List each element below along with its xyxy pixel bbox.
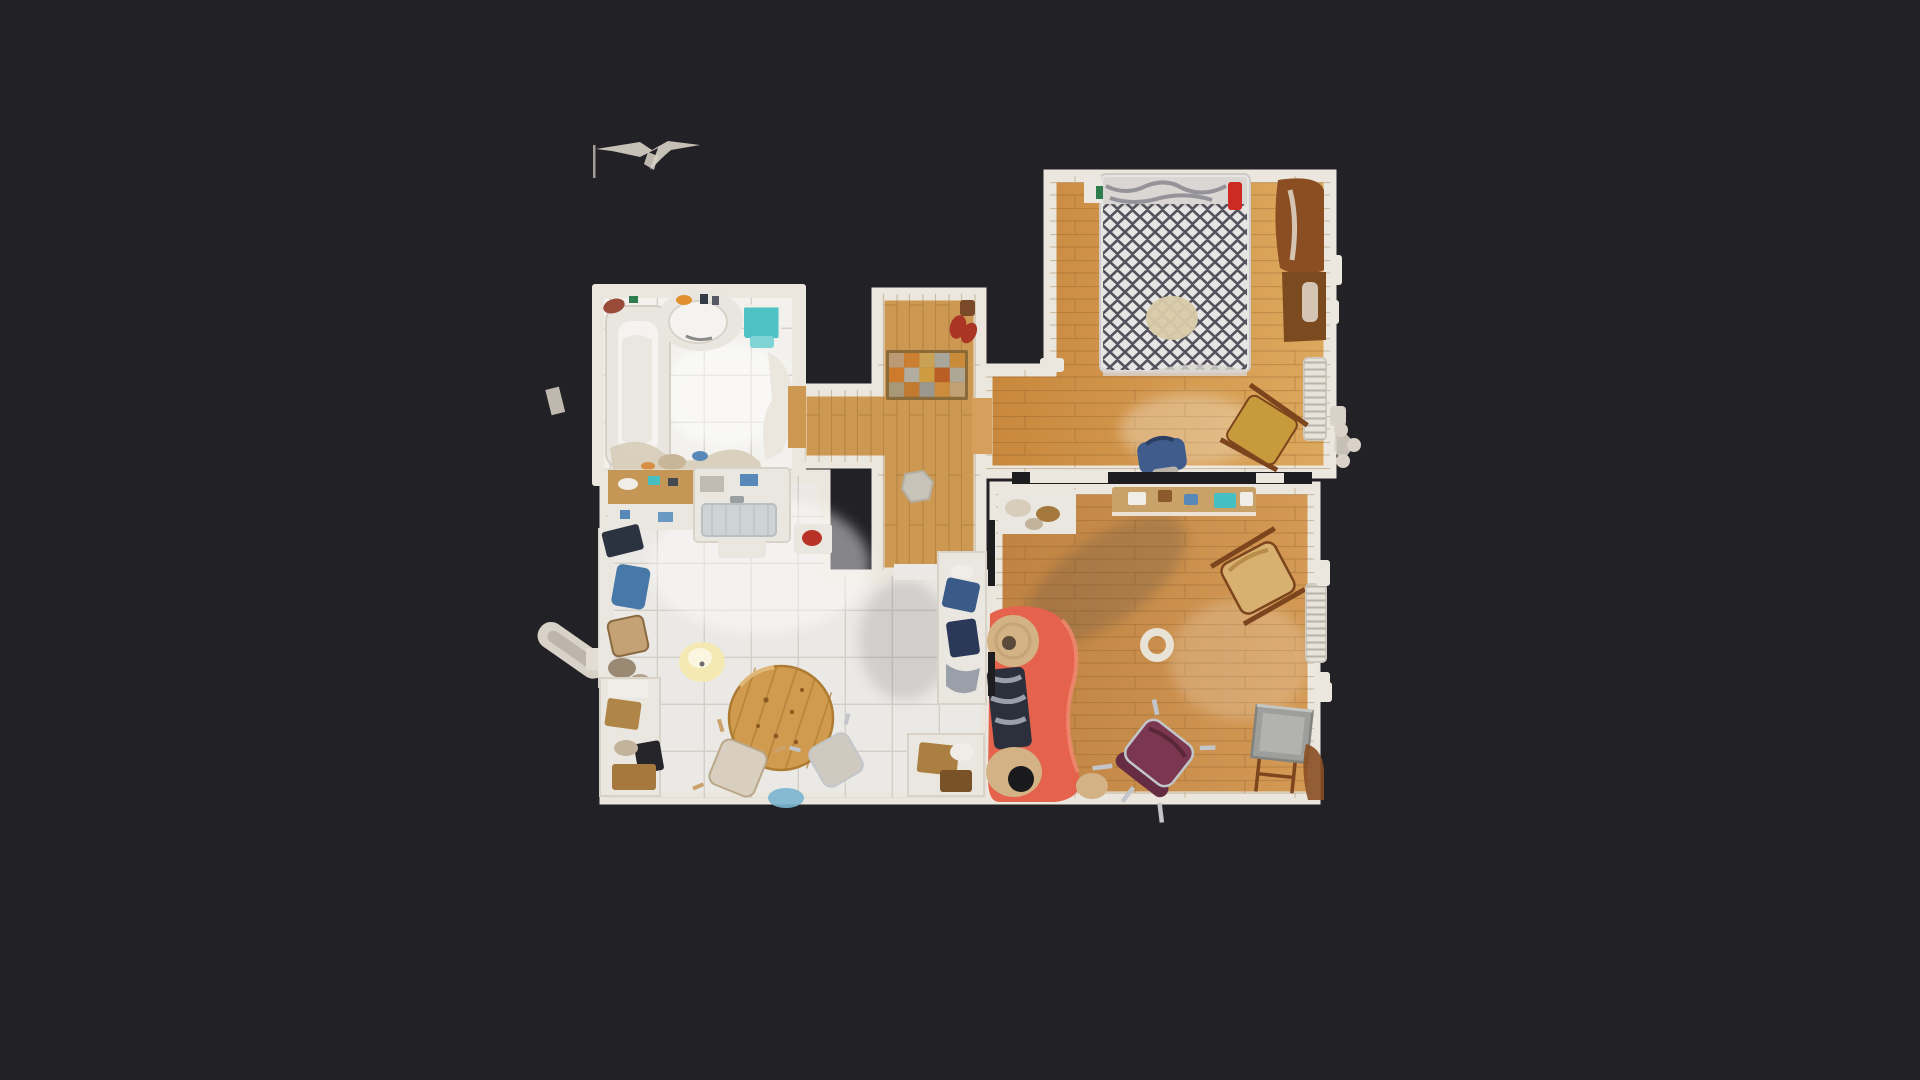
bathroom-doorway[interactable]: [788, 386, 806, 448]
kitchen-cabinet: [908, 734, 984, 796]
room-living[interactable]: [986, 472, 1332, 829]
kitchen-blue-item: [768, 788, 804, 808]
living-shelf-top: [1112, 487, 1256, 516]
dollhouse-viewer[interactable]: [0, 0, 1920, 1080]
faucet-icon: [730, 496, 744, 503]
lamp-glow: [679, 642, 725, 682]
kitchen-side-table: [794, 524, 832, 554]
kitchen-counter-top: [608, 470, 700, 530]
bedroom-radiator-ribs: [1304, 358, 1326, 440]
living-shelf-left: [998, 490, 1076, 534]
rattan-item: [1303, 744, 1324, 800]
floorplan-canvas[interactable]: [0, 0, 1920, 1080]
duvet-pattern: [1103, 204, 1247, 370]
room-bedroom[interactable]: [972, 174, 1361, 480]
scan-artifact-left: [545, 387, 565, 416]
living-radiator-ribs: [1306, 584, 1326, 662]
kitchen-counter-bottom: [600, 678, 664, 796]
bedroom-living-wall: [1012, 472, 1312, 484]
headboard-items: [1084, 176, 1103, 203]
scan-artifact-top: [593, 141, 700, 178]
soap-dish: [676, 295, 692, 305]
living-glare: [1170, 600, 1310, 720]
room-bathroom[interactable]: [592, 284, 806, 486]
entry-doormat: [886, 350, 968, 400]
bed-red-pillow: [1228, 182, 1242, 210]
bathroom-sink: [657, 289, 743, 351]
bedroom-hall-doorway[interactable]: [972, 398, 992, 454]
kitchen-right-shelf: [938, 552, 986, 704]
bed: [1100, 174, 1250, 376]
floor-stone: [902, 471, 933, 502]
entry-clutter: [960, 300, 975, 316]
